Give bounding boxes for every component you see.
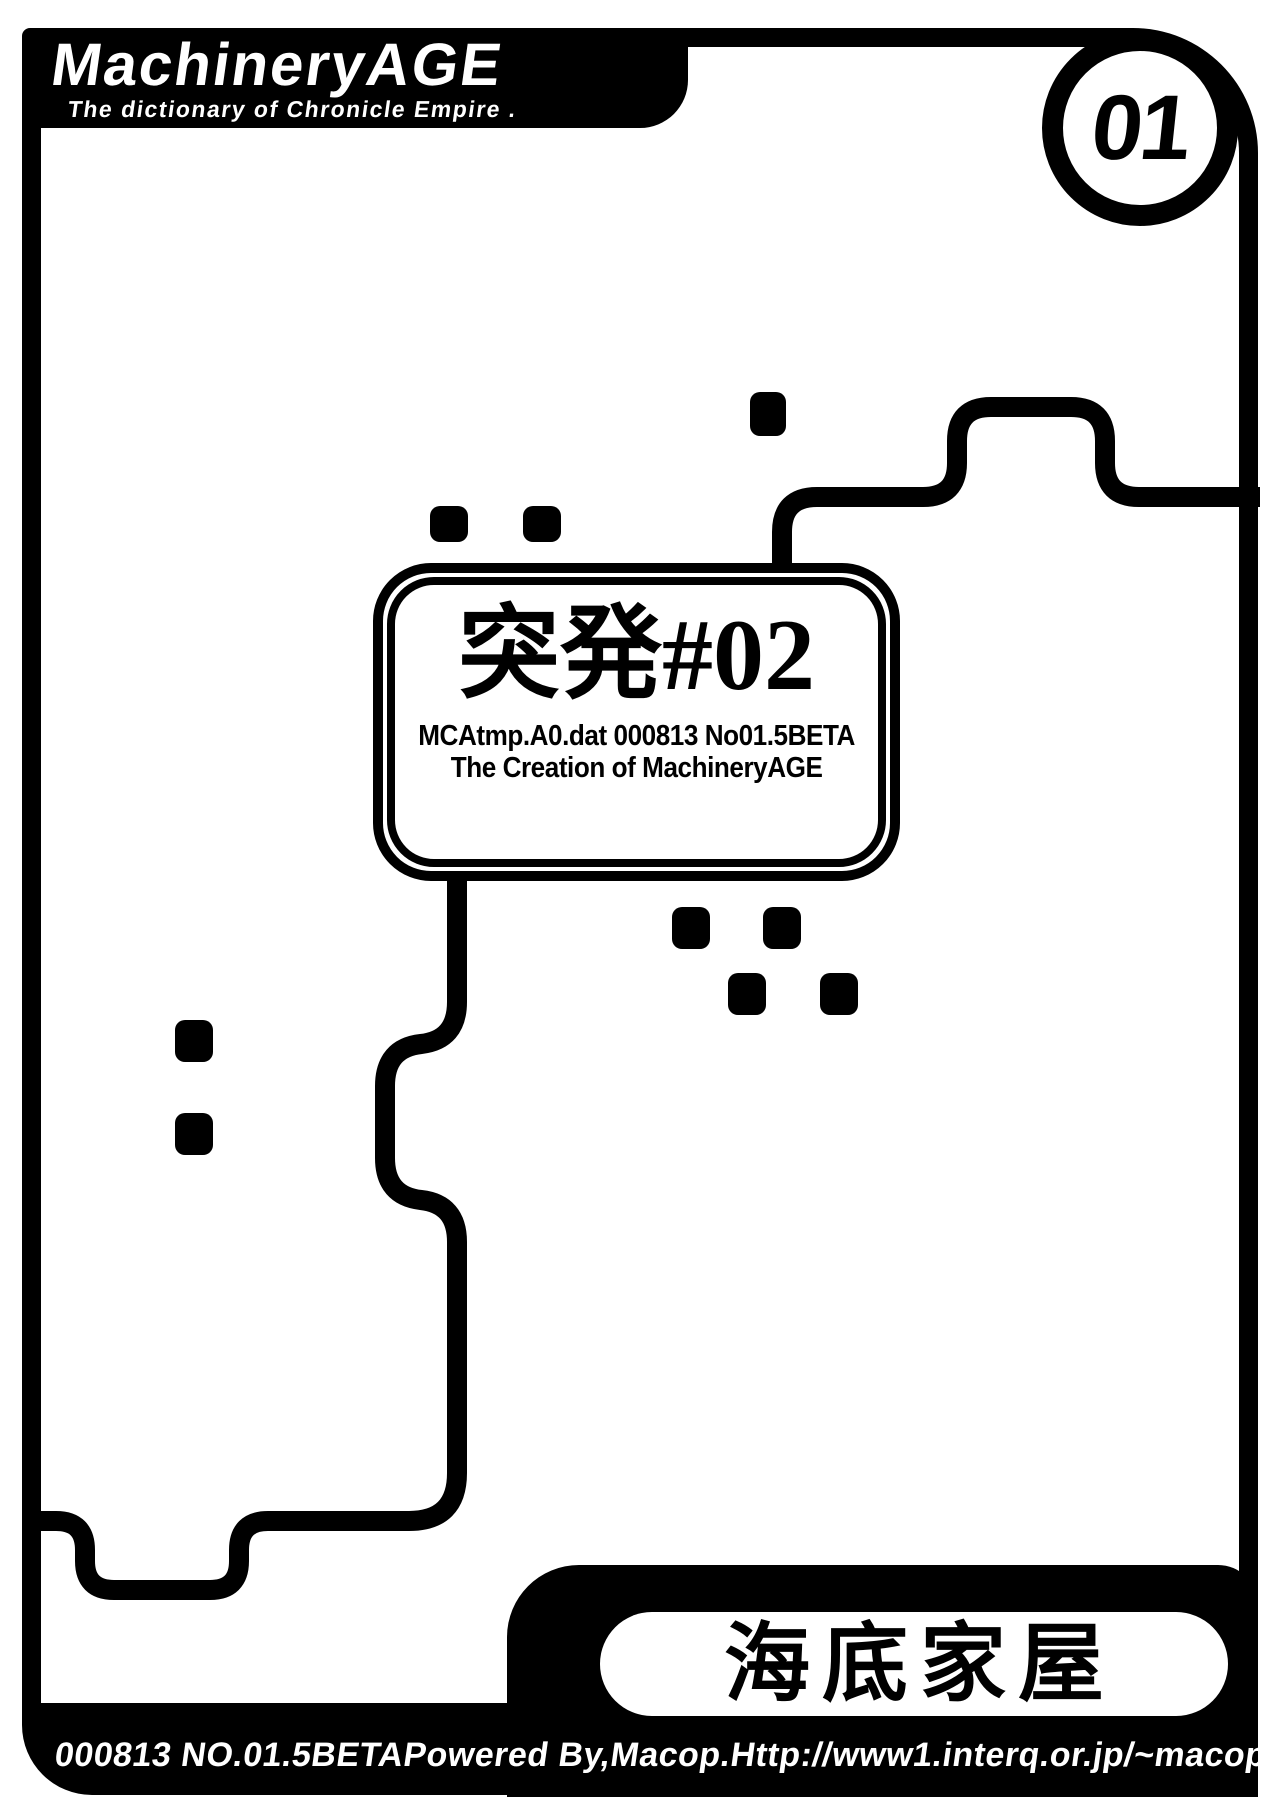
decor-square [430,506,468,542]
footer-credit: Powered By,Macop. [401,1736,734,1775]
logo-subtitle: The dictionary of Chronicle Empire . [66,96,519,123]
decor-square [750,392,786,436]
circuit-trace-bottom-left [30,876,457,1590]
issue-title: 突発#02 [458,601,815,711]
issue-subtitle-line1: MCAtmp.A0.dat 000813 No01.5BETA [418,721,855,753]
page-number-badge: 01 [1042,30,1238,226]
logo-title: MachineryAGE [47,30,507,99]
decor-square [763,907,801,949]
decor-square [672,907,710,949]
chapter-title: 海底家屋 [712,1621,1116,1707]
issue-subtitle-line2: The Creation of MachineryAGE [418,753,855,785]
footer: 000813 NO.01.5BETA Powered By,Macop. Htt… [52,1736,1239,1775]
footer-version: 000813 NO.01.5BETA [52,1736,406,1775]
document-page: MachineryAGE The dictionary of Chronicle… [0,0,1280,1807]
circuit-traces [0,0,1280,1807]
footer-url: Http://www1.interq.or.jp/~macop/ [728,1736,1279,1775]
decor-square [175,1020,213,1062]
logo-box: MachineryAGE The dictionary of Chronicle… [22,28,688,128]
decor-square [523,506,561,542]
title-box-inner-frame: 突発#02 MCAtmp.A0.dat 000813 No01.5BETA Th… [387,577,886,867]
circuit-trace-top-right [782,407,1260,574]
title-box: 突発#02 MCAtmp.A0.dat 000813 No01.5BETA Th… [373,563,900,881]
decor-square [175,1113,213,1155]
decor-square [728,973,766,1015]
chapter-pill: 海底家屋 [600,1612,1228,1716]
decor-square [820,973,858,1015]
page-number: 01 [1087,82,1193,174]
